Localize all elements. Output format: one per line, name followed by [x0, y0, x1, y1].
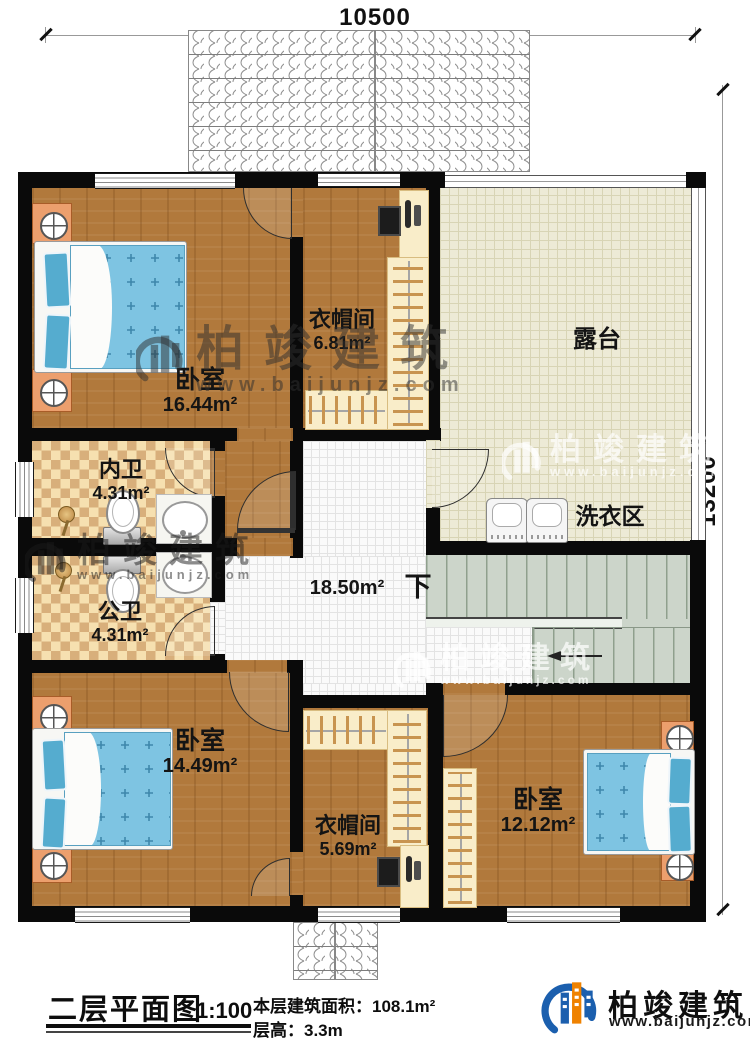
- label-bedroom-br: 卧室 12.12m²: [478, 786, 598, 836]
- sink-basin: [162, 556, 208, 594]
- lamp-icon: [666, 853, 694, 881]
- wall-bedroombl-right-b: [290, 895, 303, 906]
- door-gap: [237, 538, 293, 556]
- wall-stairs-bottom-b: [505, 683, 706, 695]
- washer-knobs: [531, 535, 563, 539]
- stair-arrow-tail: [560, 655, 602, 657]
- perfume-bottle-icon: [414, 205, 421, 226]
- label-laundry: 洗衣区: [558, 504, 662, 530]
- room-name: 卧室: [140, 727, 260, 755]
- label-hallway-area: 18.50m²: [287, 577, 407, 599]
- wardrobe-rack: [303, 710, 389, 750]
- room-name: 露台: [547, 327, 647, 354]
- nightstand: [32, 203, 72, 244]
- floor-area-text: 本层建筑面积：108.1m²: [253, 992, 435, 1017]
- room-name: 公卫: [70, 600, 170, 625]
- perfume-bottle-icon: [406, 856, 412, 882]
- wall-terrace-bottom: [426, 541, 706, 555]
- terrace-railing-right: [691, 188, 706, 540]
- door-gap: [237, 428, 293, 441]
- bed-fold: [70, 245, 112, 369]
- roof-hatch-bottom-left: [293, 922, 335, 980]
- mirror-icon: [377, 857, 400, 887]
- faucet-icon: [180, 530, 186, 536]
- label-bedroom-bl: 卧室 14.49m²: [140, 727, 260, 777]
- perfume-bottle-icon: [414, 861, 421, 880]
- window-bottom-bedroom-br: [507, 907, 620, 923]
- roof-hatch-top-left: [188, 30, 375, 172]
- wall-bathpublic-right-a: [210, 556, 225, 602]
- room-name: 卧室: [478, 786, 598, 814]
- stair-treads-upper: [426, 555, 690, 619]
- floor-plan-canvas: 10500 13200: [0, 0, 750, 1042]
- baijun-logo-icon: [540, 972, 602, 1036]
- washing-machine: [486, 498, 528, 543]
- label-bedroom-tl: 卧室 16.44m²: [120, 366, 280, 416]
- wall-bedroombl-top-a: [18, 660, 227, 673]
- floor-terrace: [440, 186, 691, 541]
- wall-closetbottom-top: [303, 695, 443, 708]
- title-underline-thick: [46, 1024, 251, 1028]
- hangers: [309, 396, 384, 425]
- wall-bedroomtl-bottom: [18, 428, 237, 441]
- roof-hatch-top-right: [375, 30, 530, 172]
- room-area: 14.49m²: [140, 755, 260, 777]
- pillow: [41, 738, 68, 791]
- pillow: [43, 313, 72, 370]
- wardrobe-rack: [443, 768, 477, 908]
- room-name: 内卫: [71, 458, 171, 483]
- room-area: 5.69m²: [288, 839, 408, 859]
- room-area: 4.31m²: [70, 625, 170, 645]
- nightstand: [32, 369, 72, 412]
- room-name: 衣帽间: [282, 308, 402, 333]
- dim-tick: [716, 83, 729, 96]
- lamp-icon: [40, 212, 68, 240]
- floor-height-text: 层高：3.3m: [253, 1016, 343, 1041]
- wardrobe-rack: [305, 390, 388, 430]
- label-bath-public: 公卫 4.31m²: [70, 600, 170, 645]
- mirror-icon: [378, 206, 401, 236]
- room-area: 12.12m²: [478, 814, 598, 836]
- perfume-bottle-icon: [405, 200, 411, 228]
- label-stairs-down: 下: [398, 572, 438, 602]
- bed-fold: [64, 732, 101, 846]
- plan-title: 二层平面图: [48, 986, 203, 1028]
- room-area: 16.44m²: [120, 394, 280, 416]
- bed-tl-duvet: [70, 245, 185, 369]
- pillow: [43, 251, 72, 308]
- wall-corner-post: [686, 172, 706, 188]
- floor-hall-ext: [303, 683, 443, 695]
- wall-bath-divider-stub: [293, 538, 303, 556]
- wall-stairs-bottom-a: [426, 683, 443, 695]
- title-underline-thin: [46, 1031, 251, 1033]
- faucet-icon: [180, 554, 186, 560]
- room-name: 洗衣区: [558, 504, 662, 530]
- label-terrace: 露台: [547, 327, 647, 354]
- pillow: [667, 805, 693, 854]
- window-bottom-closet: [318, 907, 400, 923]
- footer-brand-url: www.baijunjz.com: [609, 1013, 750, 1030]
- door-gap: [443, 683, 505, 695]
- door-leaf-passage: [237, 528, 295, 533]
- label-bath-inner: 内卫 4.31m²: [71, 458, 171, 503]
- room-area: 18.50m²: [287, 577, 407, 599]
- lamp-icon: [40, 852, 68, 880]
- window-left-bath-public: [15, 578, 34, 633]
- window-top-bedroom: [95, 173, 235, 189]
- lamp-icon: [40, 379, 68, 407]
- bed-br-duvet: [587, 753, 671, 851]
- label-closet-bottom: 衣帽间 5.69m²: [288, 814, 408, 859]
- stair-direction-arrow: [547, 651, 561, 661]
- window-left-bath-inner: [15, 462, 34, 517]
- wall-closet-bedroom-divider: [428, 695, 443, 906]
- washer-door: [492, 503, 522, 527]
- terrace-railing-top: [445, 175, 686, 188]
- window-top-closet: [318, 173, 400, 187]
- pillow: [667, 757, 693, 806]
- floor-hall-strip: [303, 441, 426, 556]
- dimension-height-line: [722, 85, 723, 915]
- washer-knobs: [491, 535, 523, 539]
- room-name: 衣帽间: [288, 814, 408, 839]
- room-area: 6.81m²: [282, 333, 402, 353]
- hangers: [448, 772, 472, 904]
- dim-tick: [716, 903, 729, 916]
- window-bottom-bedroom-bl: [75, 907, 190, 923]
- floor-stair-landing: [426, 627, 532, 683]
- stairs-down-label: 下: [398, 572, 438, 602]
- roof-hatch-bottom-right: [335, 922, 378, 980]
- dimension-width-label: 10500: [330, 4, 420, 32]
- pillow: [41, 796, 68, 849]
- plan-scale: 1:100: [196, 998, 252, 1024]
- hangers: [307, 716, 385, 745]
- room-area: 4.31m²: [71, 483, 171, 503]
- label-closet-top: 衣帽间 6.81m²: [282, 308, 402, 353]
- room-name: 卧室: [120, 366, 280, 394]
